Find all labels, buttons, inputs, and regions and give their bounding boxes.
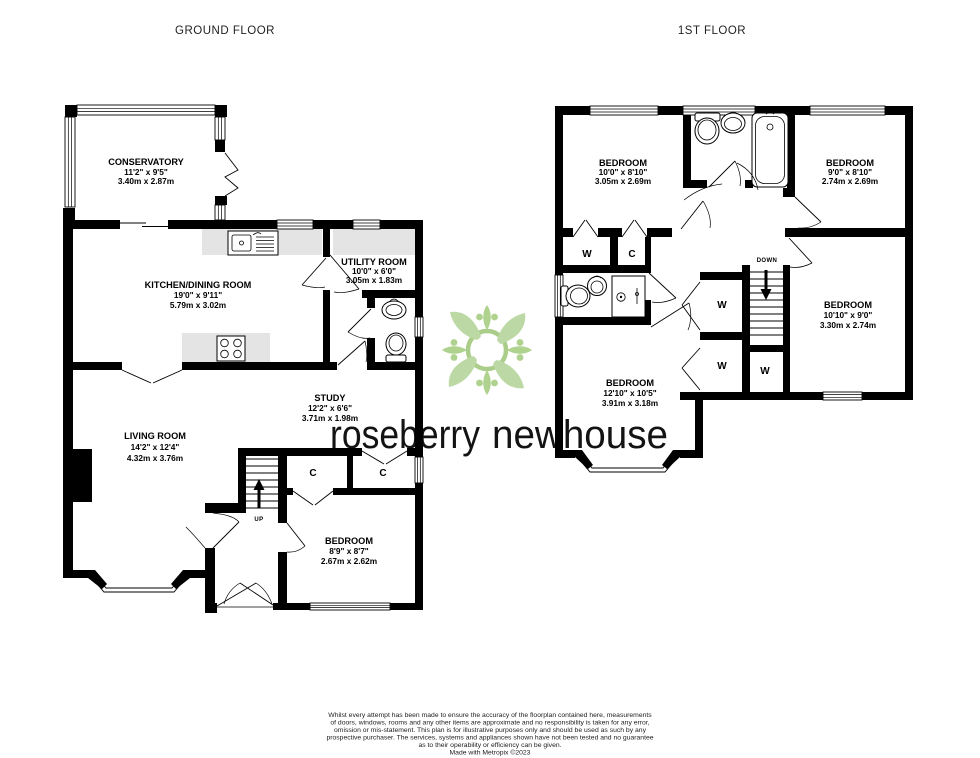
stairs-down: DOWN (750, 258, 783, 335)
room-name-living: LIVING ROOM (124, 431, 186, 441)
svg-text:10'10" x 9'0": 10'10" x 9'0" (824, 310, 873, 320)
svg-text:3.40m x 2.87m: 3.40m x 2.87m (118, 176, 174, 186)
logo-emblem-icon (442, 305, 532, 395)
credit-line: Made with Metropix ©2023 (450, 749, 531, 757)
room-name-study: STUDY (314, 393, 345, 403)
toilet-icon (695, 113, 720, 144)
svg-text:as to their operability or eff: as to their operability or efficiency ca… (418, 742, 561, 749)
svg-text:5.79m x 3.02m: 5.79m x 3.02m (170, 300, 226, 310)
stairs-up: UP (246, 459, 278, 523)
room-name-kitchen: KITCHEN/DINING ROOM (145, 280, 252, 290)
basin-icon (382, 299, 406, 319)
closet-label: C (309, 468, 316, 479)
basin-icon (588, 276, 607, 296)
ground-floor-plan: UP CONSERVATORY 11'2" x 9'5" 3.40m x 2.8… (63, 105, 423, 613)
svg-text:12'10" x 10'5": 12'10" x 10'5" (603, 388, 656, 398)
svg-text:12'2" x 6'6": 12'2" x 6'6" (308, 403, 352, 413)
svg-text:omission or mis-statement. Thi: omission or mis-statement. This plan is … (334, 727, 647, 734)
window (555, 106, 885, 400)
svg-text:of doors, windows, rooms and a: of doors, windows, rooms and any other i… (330, 720, 649, 727)
stairs-down-label: DOWN (757, 258, 778, 264)
room-name-bedroom4: BEDROOM (606, 378, 654, 388)
floorplan-page: GROUND FLOOR 1ST FLOOR (0, 0, 980, 758)
closet-label: W (717, 361, 727, 372)
svg-text:prospective purchaser. The ser: prospective purchaser. The services, sys… (326, 735, 653, 742)
bath-icon (752, 113, 788, 188)
closet-label: W (717, 300, 727, 311)
svg-text:4.32m x 3.76m: 4.32m x 3.76m (127, 453, 183, 463)
svg-text:3.91m x 3.18m: 3.91m x 3.18m (602, 398, 658, 408)
svg-text:3.30m x 2.74m: 3.30m x 2.74m (820, 320, 876, 330)
brand-word-roseberry: roseberry (330, 413, 480, 457)
svg-text:8'9" x 8'7": 8'9" x 8'7" (329, 546, 369, 556)
svg-text:3.05m x 1.83m: 3.05m x 1.83m (346, 275, 402, 285)
first-floor-title: 1ST FLOOR (678, 25, 746, 37)
room-name-bedroom-g: BEDROOM (325, 536, 373, 546)
svg-text:2.67m x 2.62m: 2.67m x 2.62m (321, 556, 377, 566)
closet-label: C (379, 468, 386, 479)
svg-text:Whilst every attempt has been: Whilst every attempt has been made to en… (328, 712, 652, 719)
hob-icon (217, 336, 245, 361)
closet-label: W (582, 249, 592, 260)
brand-word-newhouse: newhouse (492, 413, 668, 457)
french-door (225, 153, 238, 196)
sink-icon (228, 231, 278, 255)
svg-text:2.74m x 2.69m: 2.74m x 2.69m (822, 176, 878, 186)
ground-floor-title: GROUND FLOOR (175, 25, 275, 37)
floorplan-drawing: GROUND FLOOR 1ST FLOOR (0, 0, 980, 758)
toilet-icon (386, 333, 406, 362)
svg-text:19'0" x 9'11": 19'0" x 9'11" (174, 290, 222, 300)
room-name-conservatory: CONSERVATORY (108, 157, 184, 167)
shower-icon (612, 276, 645, 317)
stairs-up-label: UP (254, 517, 263, 523)
toilet-icon (561, 285, 590, 307)
sliding-door (120, 223, 168, 227)
svg-text:3.05m x 2.69m: 3.05m x 2.69m (595, 176, 651, 186)
bay-window (88, 570, 190, 592)
closet-label: C (628, 249, 635, 260)
closet-label: W (760, 366, 770, 377)
disclaimer: Whilst every attempt has been made to en… (326, 712, 653, 757)
svg-text:14'2" x 12'4": 14'2" x 12'4" (131, 442, 180, 452)
room-name-bedroom3: BEDROOM (824, 300, 872, 310)
